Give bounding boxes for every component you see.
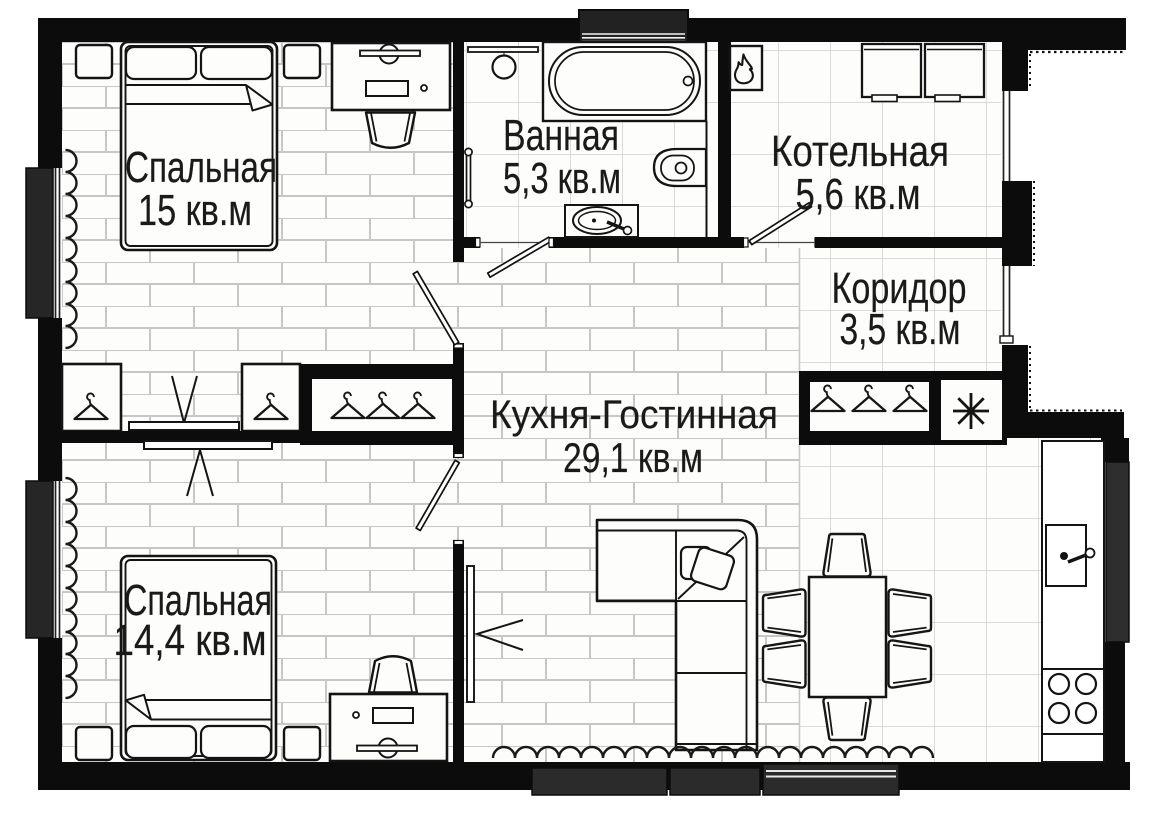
svg-text:Кухня-Гостинная: Кухня-Гостинная <box>490 393 778 437</box>
svg-text:5,3 кв.м: 5,3 кв.м <box>503 154 621 203</box>
svg-text:3,5 кв.м: 3,5 кв.м <box>840 305 961 354</box>
svg-text:Котельная: Котельная <box>771 127 949 176</box>
svg-text:15 кв.м: 15 кв.м <box>138 186 252 235</box>
svg-text:5,6 кв.м: 5,6 кв.м <box>796 170 921 219</box>
svg-text:Ванная: Ванная <box>503 111 619 160</box>
svg-text:29,1 кв.м: 29,1 кв.м <box>563 434 703 481</box>
svg-text:14,4 кв.м: 14,4 кв.м <box>114 616 267 665</box>
svg-text:Спальная: Спальная <box>125 143 277 192</box>
